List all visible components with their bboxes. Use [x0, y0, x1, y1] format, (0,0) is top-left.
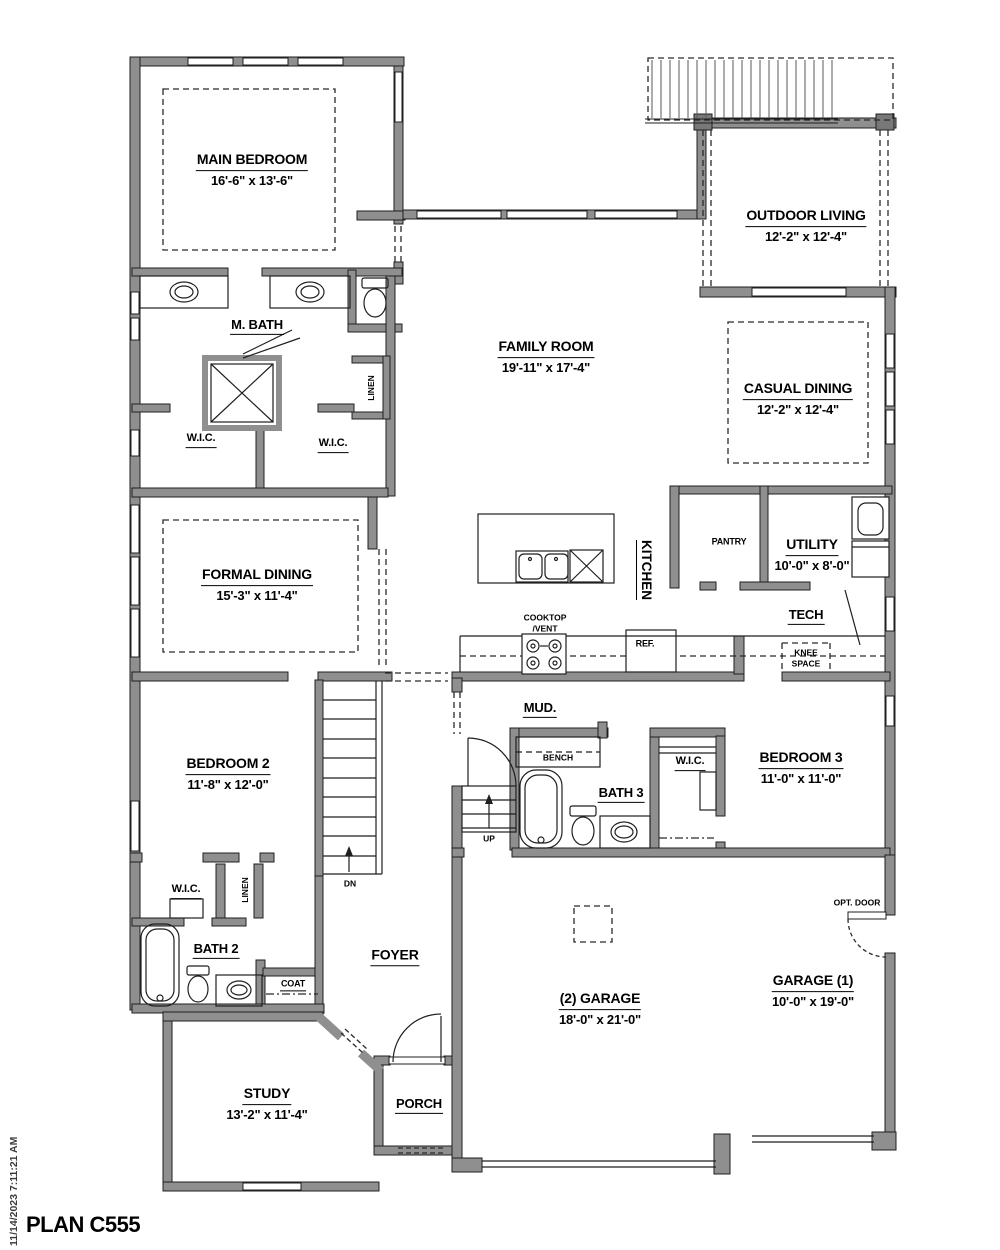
room-label-utility: UTILITY 10'-0" x 8'-0" — [775, 536, 850, 574]
closet-dresser-icon — [170, 899, 203, 918]
room-label-outdoor-living: OUTDOOR LIVING 12'-2" x 12'-4" — [745, 207, 866, 245]
vanity-sink-icon — [216, 975, 262, 1006]
room-label-bedroom3: BEDROOM 3 11'-0" x 11'-0" — [759, 749, 844, 787]
plan-title: PLAN C555 — [26, 1212, 140, 1238]
room-label-bath2: BATH 2 — [193, 941, 240, 959]
room-label-pantry: PANTRY — [712, 536, 747, 547]
tech-desk-edge — [845, 590, 860, 645]
diagonal-walls — [318, 1016, 381, 1071]
optional-door-swing — [848, 919, 886, 957]
room-label-linen-master: LINEN — [366, 375, 376, 401]
room-label-main-bedroom: MAIN BEDROOM 16'-6" x 13'-6" — [196, 151, 308, 189]
bathtub-icon — [141, 924, 179, 1006]
room-label-wic-bed3: W.I.C. — [675, 755, 706, 771]
label-cooktop-vent: COOKTOP /VENT — [524, 612, 567, 633]
room-label-bath3: BATH 3 — [598, 785, 645, 803]
vanity-sink-icon — [600, 816, 650, 848]
floor-plan: MAIN BEDROOM 16'-6" x 13'-6" OUTDOOR LIV… — [0, 0, 1000, 1250]
vanity-sink-icon — [140, 276, 350, 308]
shower-icon — [205, 330, 300, 428]
room-label-study: STUDY 13'-2" x 11'-4" — [226, 1085, 307, 1123]
kitchen-island — [478, 514, 614, 583]
mud-door-icon — [468, 738, 516, 786]
room-label-garage2: (2) GARAGE 18'-0" x 21'-0" — [559, 990, 641, 1028]
label-stairs-dn: DN — [344, 879, 356, 890]
room-label-mud: MUD. — [523, 700, 557, 718]
stairs-down-icon — [323, 681, 382, 874]
room-label-foyer: FOYER — [370, 946, 419, 966]
front-door-icon — [393, 1014, 441, 1062]
room-label-bedroom2: BEDROOM 2 11'-8" x 12'-0" — [186, 755, 271, 793]
floor-plan-drawing — [0, 0, 1000, 1250]
deck-hatch-icon — [645, 60, 838, 123]
room-label-coat: COAT — [280, 978, 306, 991]
stairs-up-icon — [462, 786, 516, 832]
washer-dryer-icon — [852, 497, 889, 577]
room-label-casual-dining: CASUAL DINING 12'-2" x 12'-4" — [743, 380, 853, 418]
toilet-icon — [362, 278, 388, 317]
label-stairs-up: UP — [483, 834, 495, 845]
toilet-icon — [570, 806, 596, 845]
label-knee-space: KNEE SPACE — [792, 647, 821, 668]
room-label-wic-master-right: W.I.C. — [318, 437, 349, 453]
print-timestamp: 11/14/2023 7:11:21 AM — [8, 1137, 20, 1246]
room-label-kitchen: KITCHEN — [636, 540, 654, 600]
label-refrigerator: REF. — [636, 638, 655, 649]
room-label-m-bath: M. BATH — [230, 317, 284, 335]
stairs-down-arrow — [345, 846, 353, 856]
garage-door-lines — [482, 1136, 874, 1167]
room-label-wic-bed2: W.I.C. — [171, 883, 202, 899]
room-label-porch: PORCH — [395, 1096, 443, 1114]
label-bench: BENCH — [543, 753, 573, 764]
label-opt-door: OPT. DOOR — [834, 898, 881, 909]
cooktop-icon — [522, 634, 566, 674]
room-label-wic-master-left: W.I.C. — [186, 432, 217, 448]
bathtub-icon — [520, 770, 562, 848]
room-label-tech: TECH — [788, 607, 825, 625]
optional-door-leaf — [848, 912, 886, 919]
room-label-family-room: FAMILY ROOM 19'-11" x 17'-4" — [497, 338, 594, 376]
refrigerator-icon — [626, 630, 676, 672]
attic-access — [574, 906, 612, 942]
stairs-up-arrow — [485, 794, 493, 804]
room-label-formal-dining: FORMAL DINING 15'-3" x 11'-4" — [201, 566, 313, 604]
deck-outline — [648, 58, 893, 120]
room-label-linen-bed2: LINEN — [240, 877, 250, 903]
toilet-icon — [187, 966, 209, 1002]
room-label-garage1: GARAGE (1) 10'-0" x 19'-0" — [772, 972, 854, 1010]
